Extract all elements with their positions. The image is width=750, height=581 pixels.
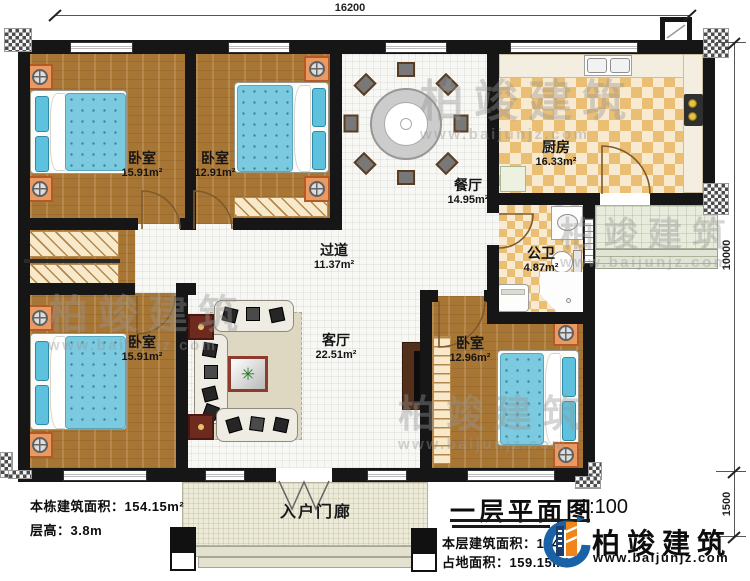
room-label-bedroom-br: 卧室 12.96m² [420, 335, 520, 365]
dimension-label-right-upper: 10000 [721, 225, 733, 285]
nightstand-icon [304, 176, 330, 202]
sofa-icon [214, 300, 294, 332]
dimension-line [55, 15, 690, 16]
wall [703, 40, 715, 205]
wall [18, 218, 138, 230]
room-label-bathroom: 公卫 4.87m² [491, 245, 591, 275]
dining-chair-icon [397, 170, 415, 185]
tv-stand-icon [402, 342, 422, 410]
brand-logo-icon [542, 514, 594, 572]
dining-chair-icon [344, 115, 359, 133]
hatch-mark [8, 470, 32, 479]
sofa-icon [216, 408, 298, 442]
entry-door-icon [276, 468, 332, 482]
dimension-line [734, 472, 735, 537]
drain-icon [566, 298, 571, 303]
lamp-icon [558, 325, 574, 341]
lamp-icon [32, 310, 48, 326]
window [63, 470, 147, 481]
wall [233, 218, 342, 230]
hatch-mark [703, 183, 729, 215]
porch-column [170, 551, 196, 571]
lamp-icon [309, 61, 325, 77]
dimension-line [716, 471, 746, 472]
dimension-line [716, 42, 746, 43]
room-label-kitchen: 厨房 16.33m² [506, 139, 606, 169]
room-label-hallway: 过道 11.37m² [284, 242, 384, 272]
chimney-icon [660, 17, 692, 45]
dimension-label-top: 16200 [310, 2, 390, 14]
side-porch-steps [595, 249, 718, 269]
hatch-mark [703, 28, 729, 58]
brand-website: www.baijunjz.com [593, 550, 729, 565]
plant-icon: ✳ [241, 366, 255, 383]
coffee-table-icon: ✳ [228, 356, 268, 392]
room-label-dining: 餐厅 14.95m² [418, 177, 518, 207]
porch-column [411, 528, 437, 552]
wall [420, 290, 438, 302]
washing-machine-icon [497, 284, 529, 312]
dining-chair-icon [454, 115, 469, 133]
side-porch [595, 205, 718, 249]
window [228, 42, 290, 53]
wall [18, 283, 135, 295]
lamp-icon [32, 69, 48, 85]
entry-porch-step [198, 557, 416, 568]
wall [420, 290, 432, 468]
room-label-entry-porch: 入户门廊 [236, 498, 396, 522]
wall [330, 54, 342, 230]
floor-height-text: 层高：3.8m [30, 520, 102, 539]
nightstand-icon [27, 432, 53, 458]
dining-chair-icon [397, 62, 415, 77]
nightstand-icon [304, 56, 330, 82]
nightstand-icon [27, 305, 53, 331]
dimension-line [734, 43, 735, 472]
lamp-icon [32, 181, 48, 197]
lamp-icon [32, 437, 48, 453]
hatch-mark [575, 476, 601, 489]
nightstand-icon [27, 64, 53, 90]
lamp-icon [558, 447, 574, 463]
wall [185, 54, 196, 230]
room-label-bedroom-bl: 卧室 15.91m² [92, 334, 192, 364]
nightstand-icon [553, 442, 579, 468]
wall [180, 218, 196, 230]
window [467, 470, 555, 481]
room-label-living: 客厅 22.51m² [286, 332, 386, 362]
side-table-icon [188, 414, 214, 440]
wall [24, 259, 120, 263]
porch-column [170, 527, 196, 551]
title-underline [452, 525, 550, 528]
wall [487, 54, 499, 193]
room-label-bedroom-tm: 卧室 12.91m² [165, 150, 265, 180]
window [70, 42, 133, 53]
stove-icon [684, 94, 703, 126]
building-area-text: 本栋建筑面积：154.15m² [30, 496, 184, 515]
wall [176, 283, 188, 468]
window [205, 470, 245, 481]
window [510, 42, 638, 53]
entry-porch-step [192, 546, 420, 557]
washbasin-icon [551, 206, 583, 240]
porch-column [411, 552, 437, 572]
window [367, 470, 407, 481]
floor-plan: ✳ [0, 0, 750, 581]
kitchen-sink-icon [584, 55, 632, 76]
window [385, 42, 447, 53]
hatch-mark [4, 28, 32, 52]
wall [487, 312, 595, 324]
nightstand-icon [27, 176, 53, 202]
lamp-icon [309, 181, 325, 197]
wardrobe-icon [27, 231, 119, 257]
